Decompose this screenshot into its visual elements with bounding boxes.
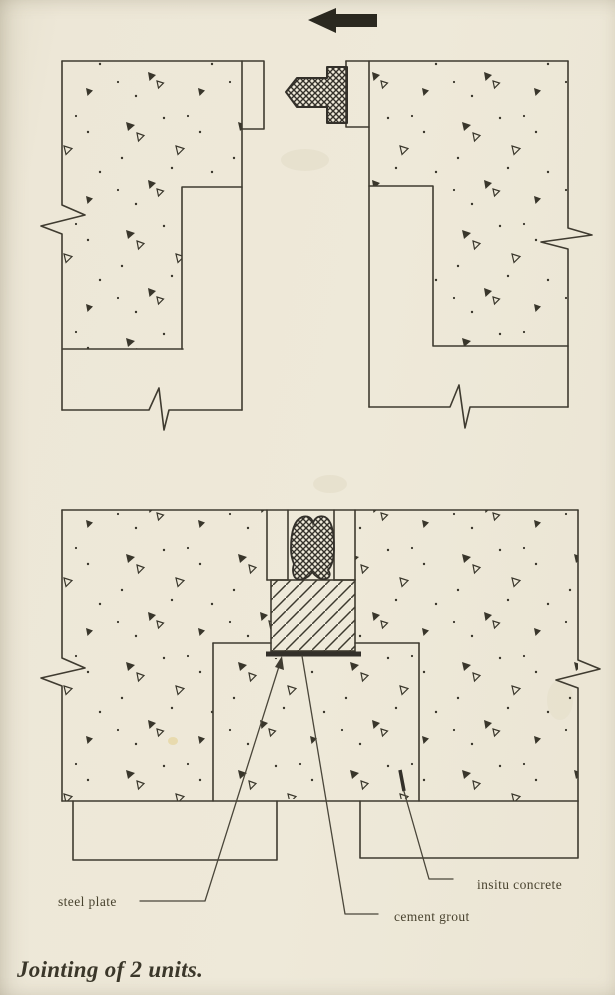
jointing-gasket-tongue [286, 67, 347, 123]
unit-bottom-break-line [369, 385, 568, 428]
cement-grout-block [271, 580, 355, 651]
label-cement-grout: cement grout [394, 909, 470, 924]
label-steel-plate: steel plate [58, 894, 117, 909]
jointing-figure-canvas: steel plate cement grout insitu concrete… [0, 0, 615, 995]
unit-rib-outline [346, 61, 369, 127]
scanned-book-page: steel plate cement grout insitu concrete… [0, 0, 615, 995]
compressed-gasket [291, 516, 334, 579]
stain [313, 475, 347, 493]
placement-direction-arrow [308, 8, 377, 33]
concrete-section-speckle [369, 61, 567, 346]
figure-caption: Jointing of 2 units. [16, 957, 203, 982]
left-arrow-icon [308, 8, 377, 33]
label-insitu-concrete: insitu concrete [477, 877, 562, 892]
stain [281, 149, 329, 171]
upper-left-unit [41, 61, 264, 430]
unit-bottom-break-line [62, 388, 242, 430]
right-flange-outline [360, 801, 578, 858]
diagram-units-joined: steel plate cement grout insitu concrete [41, 510, 600, 924]
unit-rebate-step [182, 187, 242, 349]
left-flange-outline [73, 801, 277, 860]
upper-right-unit [346, 61, 592, 428]
bottom-flanges [73, 801, 578, 860]
diagram-units-separated [41, 61, 592, 430]
concrete-section-speckle [62, 61, 242, 349]
